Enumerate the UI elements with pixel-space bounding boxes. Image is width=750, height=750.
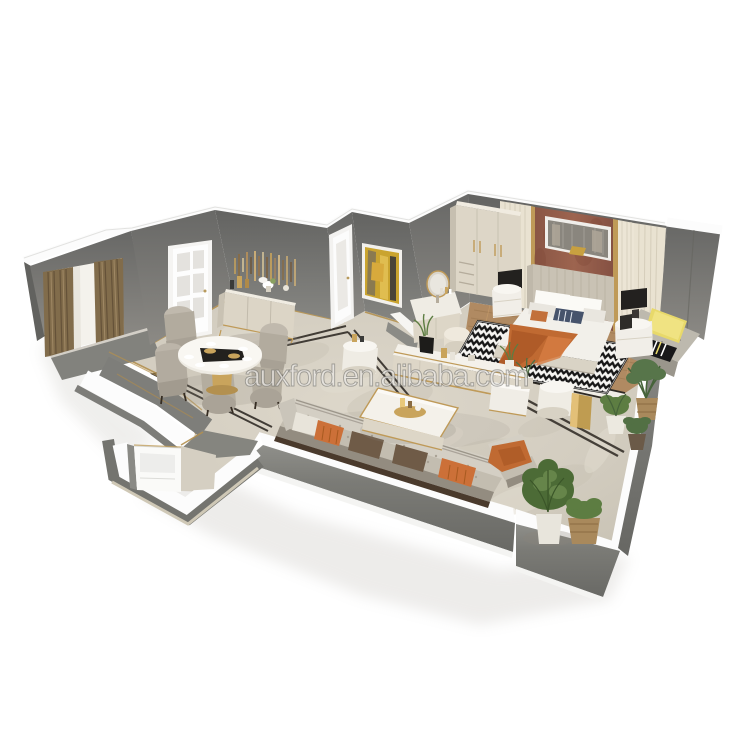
svg-text:auxford.en.alibaba.com: auxford.en.alibaba.com <box>244 359 528 393</box>
